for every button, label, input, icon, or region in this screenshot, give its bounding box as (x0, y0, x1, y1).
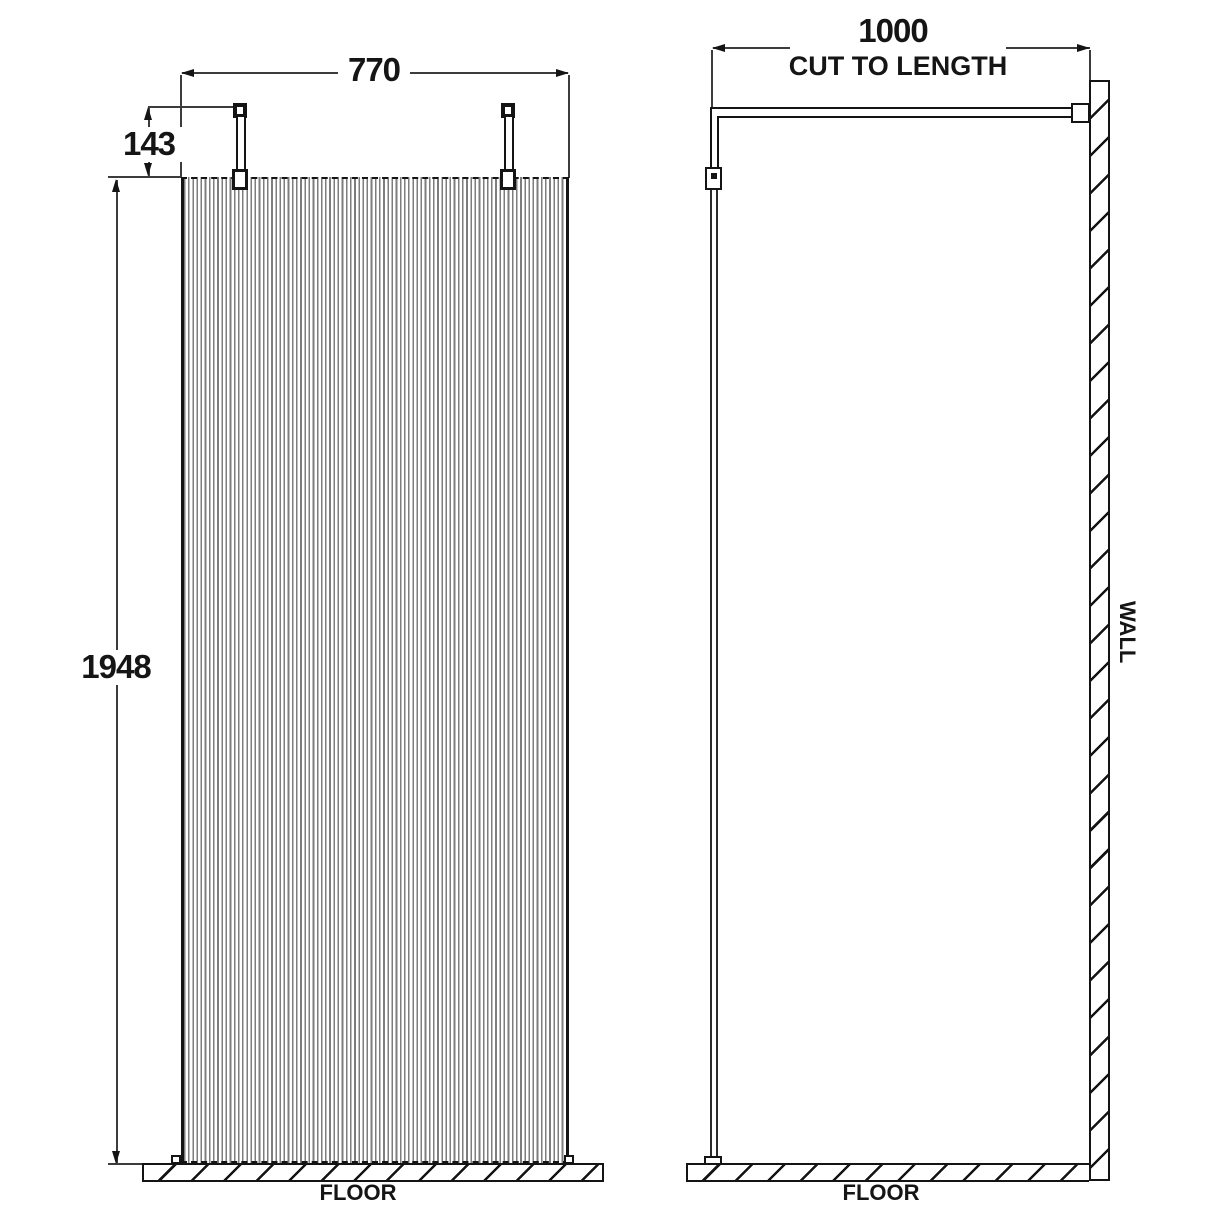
dim-1948-ext-top (108, 176, 181, 178)
dim-770-ext-right (568, 75, 570, 178)
support-arm-horizontal (716, 107, 1073, 118)
floor-section-front (142, 1163, 604, 1182)
floor-label-front: FLOOR (308, 1181, 408, 1205)
support-rod-right-clamp (500, 169, 516, 190)
dim-1000-ext-left (711, 50, 713, 107)
dim-143-ext-top (148, 106, 236, 108)
glass-panel-side-edge (710, 190, 718, 1158)
dim-1948-label: 1948 (74, 650, 158, 685)
support-rod-left-cap (233, 103, 247, 118)
support-rod-right-cap (501, 103, 515, 118)
dim-1000-ext-right (1089, 50, 1091, 80)
support-rod-left-clamp (232, 169, 248, 190)
panel-foot-right (564, 1155, 574, 1164)
support-arm-bend-inner-line (717, 116, 720, 170)
dim-1948-arrow-bottom (112, 1151, 120, 1164)
technical-drawing-canvas: FLOOR 770 143 1948 WALL FLOOR (0, 0, 1224, 1224)
dim-143-arrow-bottom (144, 163, 152, 176)
support-rod-left-body (236, 117, 246, 170)
dim-770-arrow-right (556, 69, 569, 77)
floor-section-side (686, 1163, 1089, 1182)
wall-bracket (1071, 103, 1090, 123)
dim-143-label: 143 (111, 127, 187, 162)
dim-770-line-a (182, 72, 338, 74)
dim-770-label: 770 (338, 53, 410, 88)
dim-1000-arrow-left (712, 44, 725, 52)
dim-770-line-b (410, 72, 568, 74)
support-rod-right-body (504, 117, 514, 170)
dim-770-ext-left (180, 75, 182, 177)
dim-770-arrow-left (181, 69, 194, 77)
panel-foot-left (171, 1155, 181, 1164)
wall-section (1089, 80, 1110, 1181)
cut-to-length-label: CUT TO LENGTH (768, 52, 1028, 80)
dim-1000-arrow-right (1077, 44, 1090, 52)
floor-label-side: FLOOR (831, 1181, 931, 1205)
panel-foot-side (704, 1156, 722, 1165)
glass-clamp-screw (711, 173, 717, 179)
glass-panel-front (181, 177, 569, 1163)
dim-143-arrow-top (144, 107, 152, 120)
dim-1000-label: 1000 (853, 14, 933, 49)
dim-1948-arrow-top (112, 179, 120, 192)
